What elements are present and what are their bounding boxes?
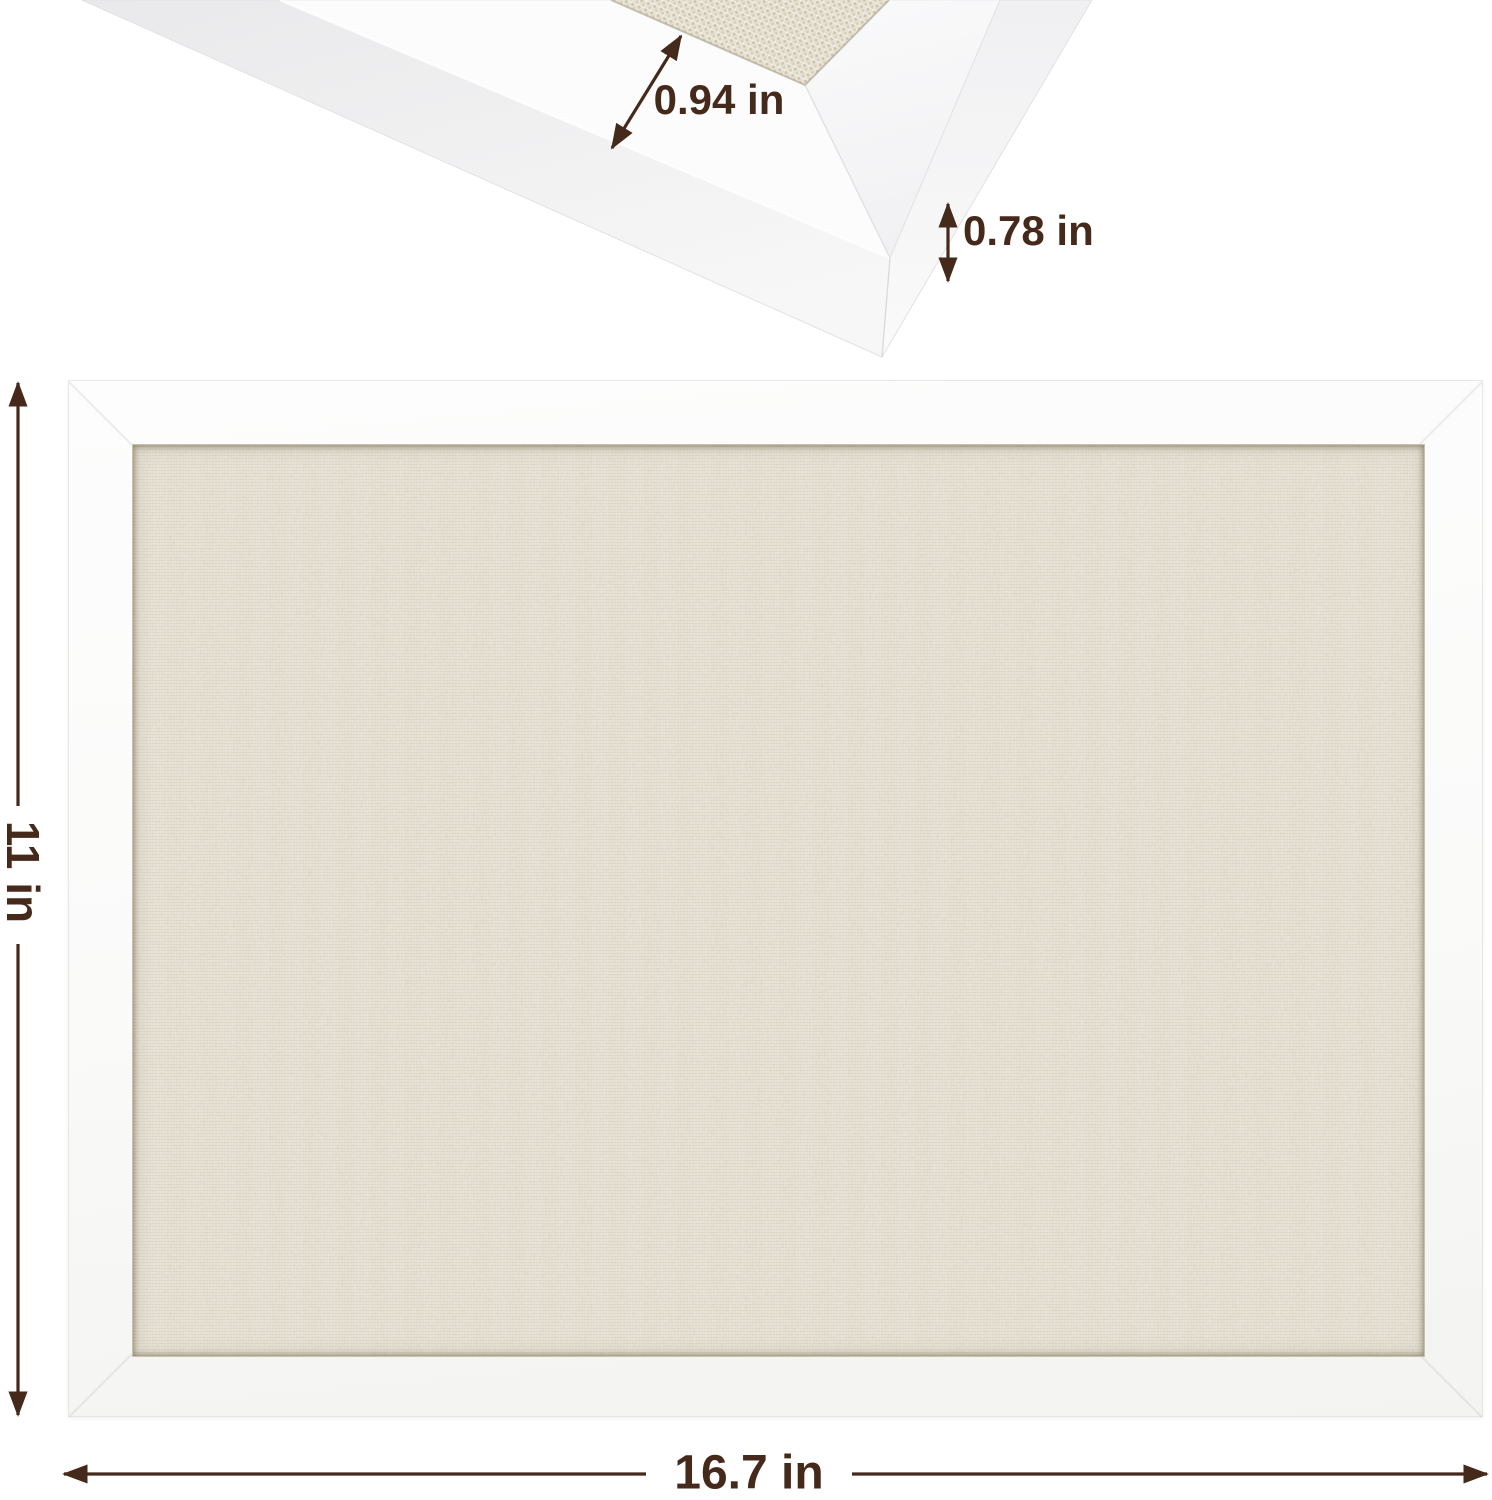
product-dimension-diagram: 0.94 in 0.78 in 11 in 16.7 in	[0, 0, 1492, 1500]
miter-line-bottom-right	[1418, 1353, 1482, 1417]
miter-line-top-right	[1418, 381, 1482, 445]
miter-line-bottom-left	[68, 1353, 132, 1417]
board-height-label: 11 in	[0, 821, 50, 923]
fabric-texture-noise	[133, 445, 1424, 1356]
edge-depth-label: 0.78 in	[963, 207, 1094, 255]
miter-line-top-left	[68, 381, 132, 445]
board-front-view	[68, 380, 1483, 1417]
board-fabric-surface	[132, 444, 1425, 1357]
corner-detail-illustration	[0, 0, 1492, 380]
board-width-label: 16.7 in	[674, 1446, 823, 1500]
face-width-label: 0.94 in	[654, 76, 785, 124]
